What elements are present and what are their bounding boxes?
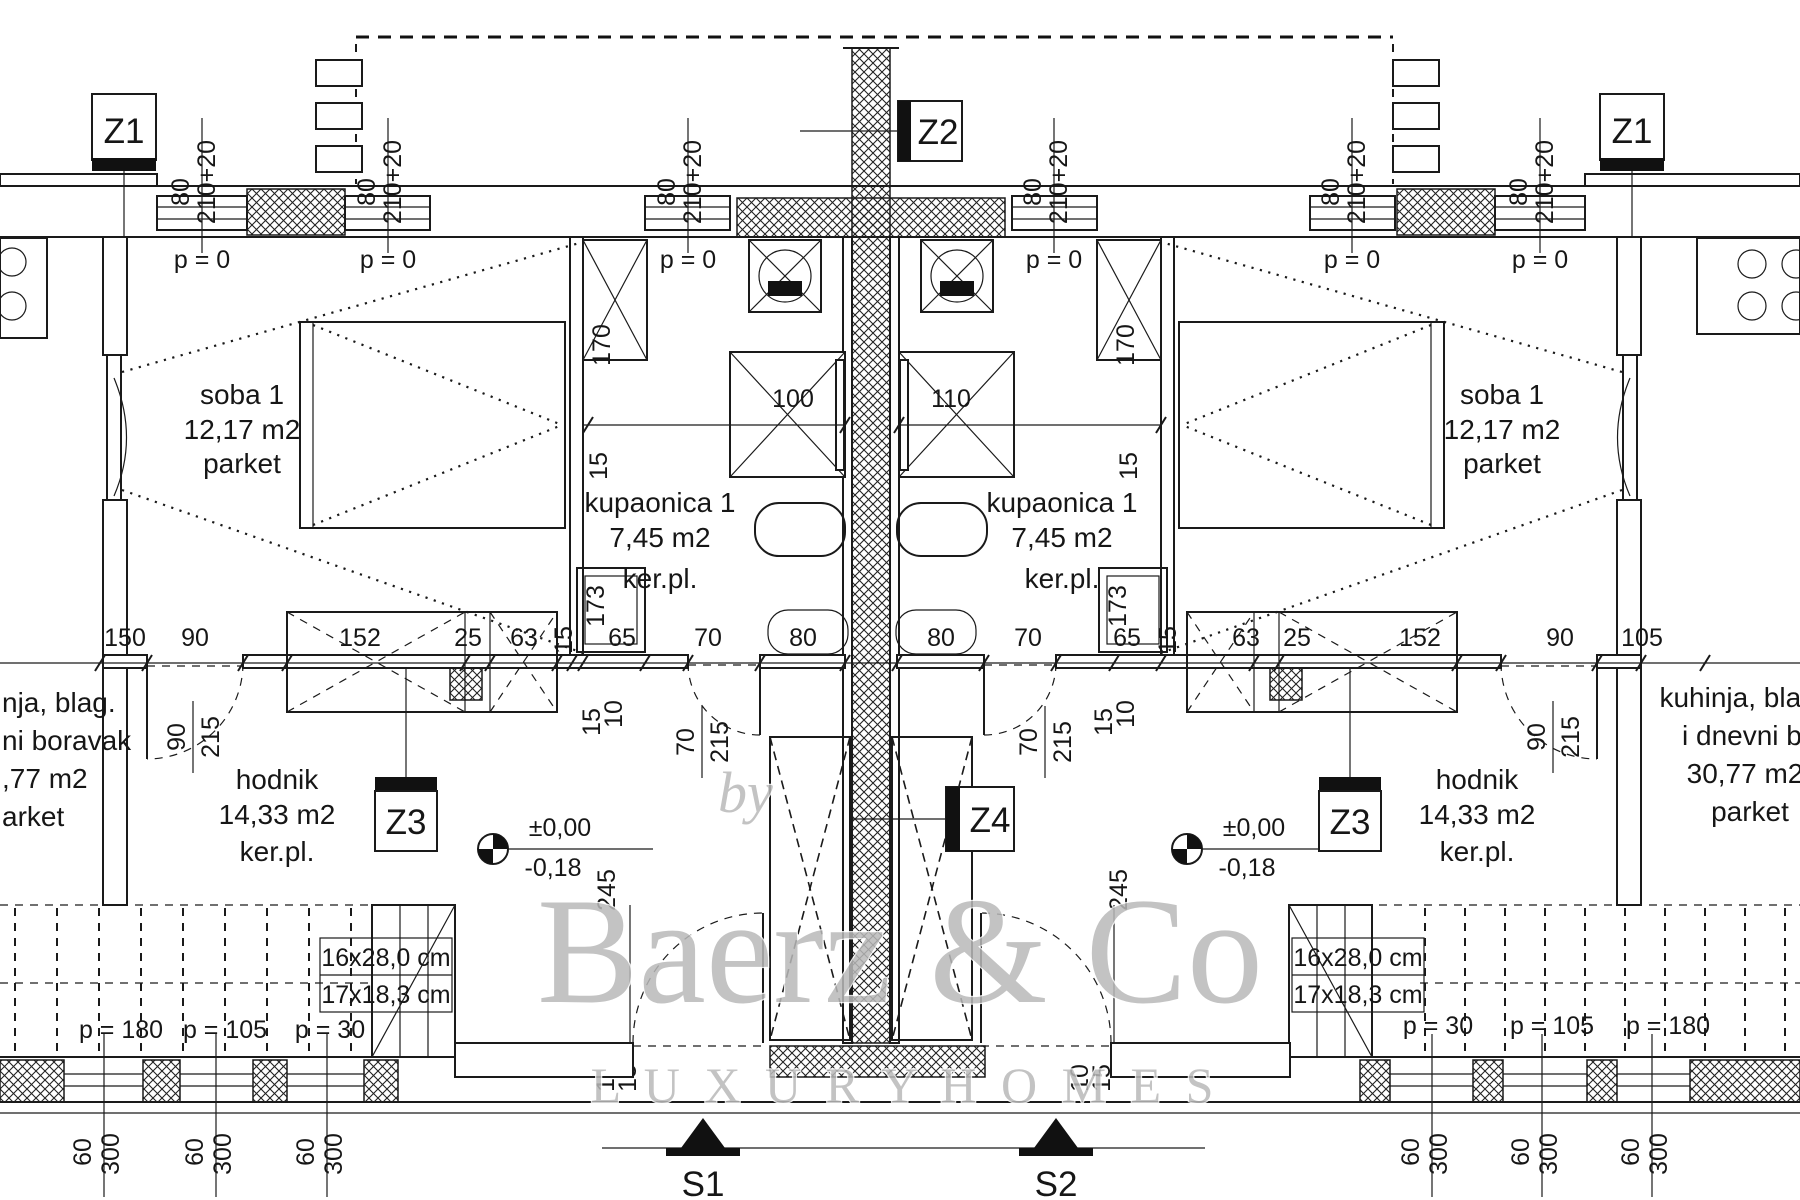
marker-z3-right: Z3	[1319, 668, 1381, 851]
watermark-by: by	[718, 760, 773, 825]
svg-text:12,17 m2: 12,17 m2	[184, 414, 301, 445]
svg-text:Z4: Z4	[970, 801, 1011, 840]
chain-dim: 25	[454, 624, 482, 652]
chain-dim: 15	[550, 626, 578, 654]
svg-text:12,17 m2: 12,17 m2	[1444, 414, 1561, 445]
section-marker-s1: S1	[666, 1118, 740, 1200]
balcony-railing-left	[316, 60, 362, 172]
svg-text:p = 30: p = 30	[1403, 1012, 1473, 1040]
chain-dim: 80	[927, 624, 955, 652]
chain-dim: 65	[608, 624, 636, 652]
svg-text:,77 m2: ,77 m2	[2, 763, 88, 794]
kitchen-counter-left	[0, 238, 47, 338]
bathtub	[755, 503, 845, 556]
room-label-kuhinja-right: kuhinja, blag. i dnevni boravak 30,77 m2…	[1659, 682, 1800, 827]
svg-text:S2: S2	[1035, 1165, 1078, 1200]
svg-text:arket: arket	[2, 801, 64, 832]
jamb-dim: 10	[600, 700, 628, 728]
section-line: S1 S2	[602, 1118, 1205, 1200]
svg-text:p = 180: p = 180	[79, 1016, 163, 1044]
svg-text:soba 1: soba 1	[200, 379, 284, 410]
bed	[1179, 322, 1444, 528]
chain-dim: 25	[1283, 624, 1311, 652]
svg-text:p = 105: p = 105	[1510, 1012, 1594, 1040]
svg-text:ker.pl.: ker.pl.	[1025, 563, 1100, 594]
svg-text:Z3: Z3	[386, 803, 427, 842]
closet-dim: 170	[1112, 324, 1140, 366]
chain-dim: 105	[1621, 624, 1663, 652]
svg-text:14,33 m2: 14,33 m2	[1419, 799, 1536, 830]
svg-text:7,45 m2: 7,45 m2	[1011, 522, 1112, 553]
floorplan-page: 80 210+20 p = 0 60 300 90 215 70 215	[0, 0, 1800, 1200]
marker-z3-left: Z3	[375, 668, 437, 851]
chain-dim: 63	[1232, 624, 1260, 652]
wall-dim: 15	[1115, 452, 1143, 480]
svg-text:nja, blag.: nja, blag.	[2, 687, 116, 718]
svg-text:parket: parket	[1463, 448, 1541, 479]
wall-pier-hatched	[247, 189, 345, 235]
bed	[300, 322, 565, 528]
room-label-soba-right: soba 1 12,17 m2 parket	[1444, 379, 1561, 479]
chain-dim: 63	[510, 624, 538, 652]
balcony-railing-right	[1393, 60, 1439, 172]
marker-z1-left: Z1	[92, 94, 156, 237]
svg-text:ker.pl.: ker.pl.	[1440, 836, 1515, 867]
chain-dim: 150	[104, 624, 146, 652]
svg-text:ni boravak: ni boravak	[2, 725, 132, 756]
svg-text:Z3: Z3	[1330, 803, 1371, 842]
chain-dim: 90	[1546, 624, 1574, 652]
svg-text:Z1: Z1	[1612, 112, 1653, 151]
room-label-hodnik-right: hodnik 14,33 m2 ker.pl.	[1419, 764, 1536, 867]
chain-dim: 70	[1014, 624, 1042, 652]
terrace-treads-right	[1425, 908, 1785, 1055]
mirror	[836, 360, 844, 470]
svg-text:hodnik: hodnik	[236, 764, 320, 795]
wall-pier-hatched	[1397, 189, 1495, 235]
svg-text:p = 180: p = 180	[1626, 1012, 1710, 1040]
bathtub	[897, 503, 987, 556]
svg-text:ker.pl.: ker.pl.	[623, 563, 698, 594]
chain-dim: 15	[1154, 626, 1182, 654]
svg-text:16x28,0 cm: 16x28,0 cm	[1293, 944, 1422, 972]
svg-text:p = 105: p = 105	[183, 1016, 267, 1044]
svg-text:14,33 m2: 14,33 m2	[219, 799, 336, 830]
svg-text:hodnik: hodnik	[1436, 764, 1520, 795]
chain-dim: 80	[789, 624, 817, 652]
svg-text:soba 1: soba 1	[1460, 379, 1544, 410]
svg-text:p = 30: p = 30	[295, 1016, 365, 1044]
marker-z1-right: Z1	[1600, 94, 1664, 237]
chain-dim: 90	[181, 624, 209, 652]
chain-dim: 152	[1399, 624, 1441, 652]
svg-text:16x28,0 cm: 16x28,0 cm	[321, 944, 450, 972]
room-label-hodnik-left: hodnik 14,33 m2 ker.pl.	[219, 764, 336, 867]
jamb-dim: 10	[1112, 700, 1140, 728]
mirror	[900, 360, 908, 470]
svg-text:i dnevni boravak: i dnevni boravak	[1682, 720, 1800, 751]
chain-dim: 152	[339, 624, 381, 652]
watermark-brand: Baerz & Co	[537, 867, 1263, 1035]
svg-text:parket: parket	[1711, 796, 1789, 827]
closet-dim: 170	[588, 324, 616, 366]
svg-text:30,77 m2: 30,77 m2	[1687, 758, 1800, 789]
svg-text:kupaonica 1: kupaonica 1	[584, 487, 735, 518]
svg-text:kuhinja, blag.: kuhinja, blag.	[1659, 682, 1800, 713]
svg-text:17x18,3 cm: 17x18,3 cm	[1293, 981, 1422, 1009]
level-upper: ±0,00	[1223, 814, 1285, 842]
svg-text:kupaonica 1: kupaonica 1	[986, 487, 1137, 518]
chain-dim: 70	[694, 624, 722, 652]
wall-dim: 15	[585, 452, 613, 480]
svg-text:Z2: Z2	[918, 113, 959, 152]
chain-dim: 65	[1113, 624, 1141, 652]
svg-text:S1: S1	[682, 1165, 725, 1200]
watermark-tagline: L U X U R Y H O M E S	[591, 1057, 1220, 1113]
floorplan-drawing: 80 210+20 p = 0 60 300 90 215 70 215	[0, 0, 1800, 1200]
shower-dim: 173	[582, 585, 610, 627]
room-label-soba-left: soba 1 12,17 m2 parket	[184, 379, 301, 479]
section-marker-s2: S2	[1019, 1118, 1093, 1200]
svg-text:parket: parket	[203, 448, 281, 479]
svg-text:Z1: Z1	[104, 112, 145, 151]
room-label-kupaonica-right: kupaonica 1 7,45 m2 ker.pl.	[986, 487, 1137, 594]
vanity-dim: 110	[931, 385, 971, 413]
svg-text:17x18,3 cm: 17x18,3 cm	[321, 981, 450, 1009]
shower-dim: 173	[1104, 585, 1132, 627]
stair-riser-note-right: 16x28,0 cm 17x18,3 cm	[1292, 938, 1424, 1012]
kitchen-counter-right	[1697, 238, 1800, 334]
svg-text:ker.pl.: ker.pl.	[240, 836, 315, 867]
svg-text:7,45 m2: 7,45 m2	[609, 522, 710, 553]
level-upper: ±0,00	[529, 814, 591, 842]
door-arc	[147, 663, 243, 759]
bathroom-left	[577, 240, 848, 654]
vanity-dim: 100	[772, 385, 814, 413]
stair-riser-note-left: 16x28,0 cm 17x18,3 cm	[320, 938, 452, 1012]
room-label-kupaonica-left: kupaonica 1 7,45 m2 ker.pl.	[584, 487, 735, 594]
